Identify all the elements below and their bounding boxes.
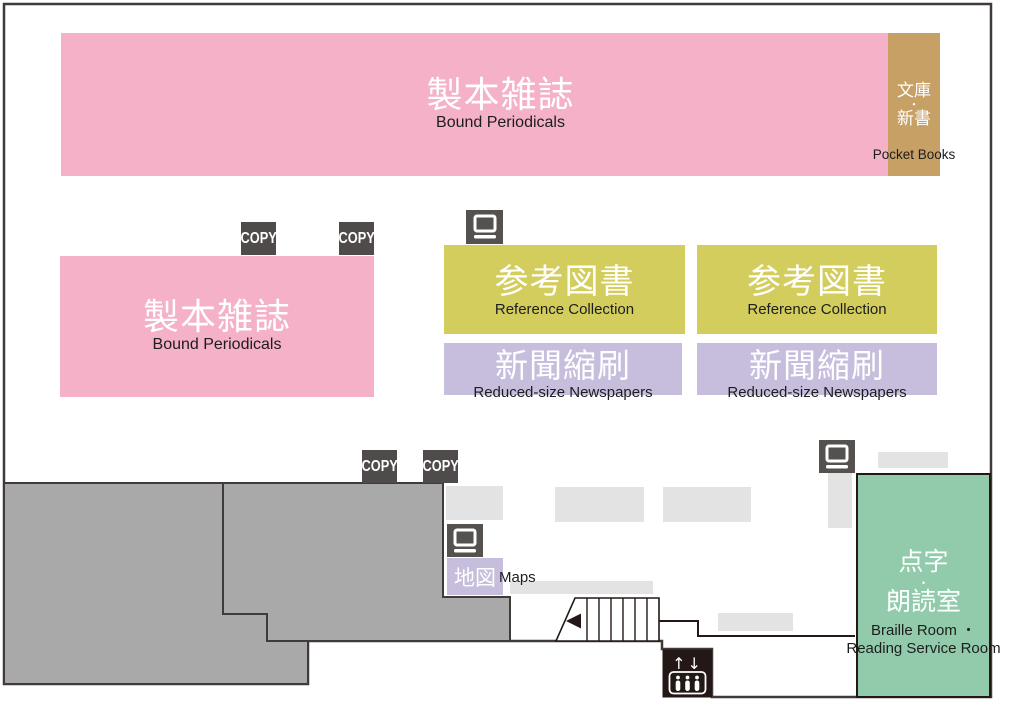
area-label-jp: 参考図書 [747,265,887,301]
area-label-jp: 製本雑誌 [143,298,291,336]
computer-terminal-icon [466,210,503,244]
area-maps-box: 地図 [447,558,503,595]
copy-machine-icon: COPY [339,222,374,255]
area-reference-collection-right: 参考図書 Reference Collection [697,245,937,334]
area-label-jp: 地図 [454,562,496,592]
area-label-en: Bound Periodicals [153,336,282,354]
area-bound-periodicals-top: 製本雑誌 Bound Periodicals 文庫 ・ 新書 Pocket Bo… [61,33,940,176]
label-separator-dot: ・ [917,577,929,589]
table-block [446,486,503,520]
copy-label: COPY [422,458,458,476]
area-maps: 地図 Maps [447,558,503,595]
area-label-en-line2: Reading Service Room [846,640,1000,658]
area-label-jp: 製本雑誌 [426,76,574,114]
area-label-jp: 新聞縮刷 [495,349,631,384]
area-braille-reading-room: 点字 ・ 朗読室 Braille Room ・ Reading Service … [856,473,991,698]
copy-label: COPY [240,230,276,248]
copy-machine-icon: COPY [241,222,276,255]
library-floor-map: ↑↓ 製本雑誌 Bound Periodicals 文庫 ・ 新書 Pocket… [0,0,1017,707]
table-block [718,613,793,631]
area-label-en: Pocket Books [873,147,956,162]
area-label-en-line1: Braille Room ・ [846,622,1000,640]
area-pocket-books: 文庫 ・ 新書 Pocket Books [888,33,940,176]
area-label-jp: 点字 [898,549,948,577]
table-block [663,487,751,522]
copy-label: COPY [361,458,397,476]
table-block [878,452,948,468]
copy-label: COPY [338,230,374,248]
area-label-jp: 朗読室 [886,589,961,617]
area-label-jp: 新書 [897,110,931,129]
area-label-jp: 参考図書 [495,265,635,301]
computer-terminal-icon [447,524,483,557]
area-reduced-size-newspapers-left: 新聞縮刷 Reduced-size Newspapers [444,343,682,395]
elevator-icon: ↑↓ [663,650,713,698]
area-label-en: Braille Room ・ Reading Service Room [846,622,1000,658]
table-block [828,473,852,528]
area-label-en: Reference Collection [495,301,634,318]
area-label-jp: 文庫 [897,82,931,101]
copy-machine-icon: COPY [423,450,458,483]
elevator-arrows: ↑↓ [672,654,703,673]
area-reduced-size-newspapers-right: 新聞縮刷 Reduced-size Newspapers [697,343,937,395]
area-label-en: Maps [499,569,536,586]
area-label-en: Reduced-size Newspapers [727,384,906,401]
copy-machine-icon: COPY [362,450,397,483]
area-label-en: Reference Collection [747,301,886,318]
area-label-en: Bound Periodicals [436,114,565,132]
computer-terminal-icon [819,440,855,473]
area-bound-periodicals-left: 製本雑誌 Bound Periodicals [60,256,374,397]
area-label-jp: 新聞縮刷 [749,349,885,384]
area-reference-collection-left: 参考図書 Reference Collection [444,245,685,334]
area-label-en: Reduced-size Newspapers [473,384,652,401]
table-block [555,487,644,522]
